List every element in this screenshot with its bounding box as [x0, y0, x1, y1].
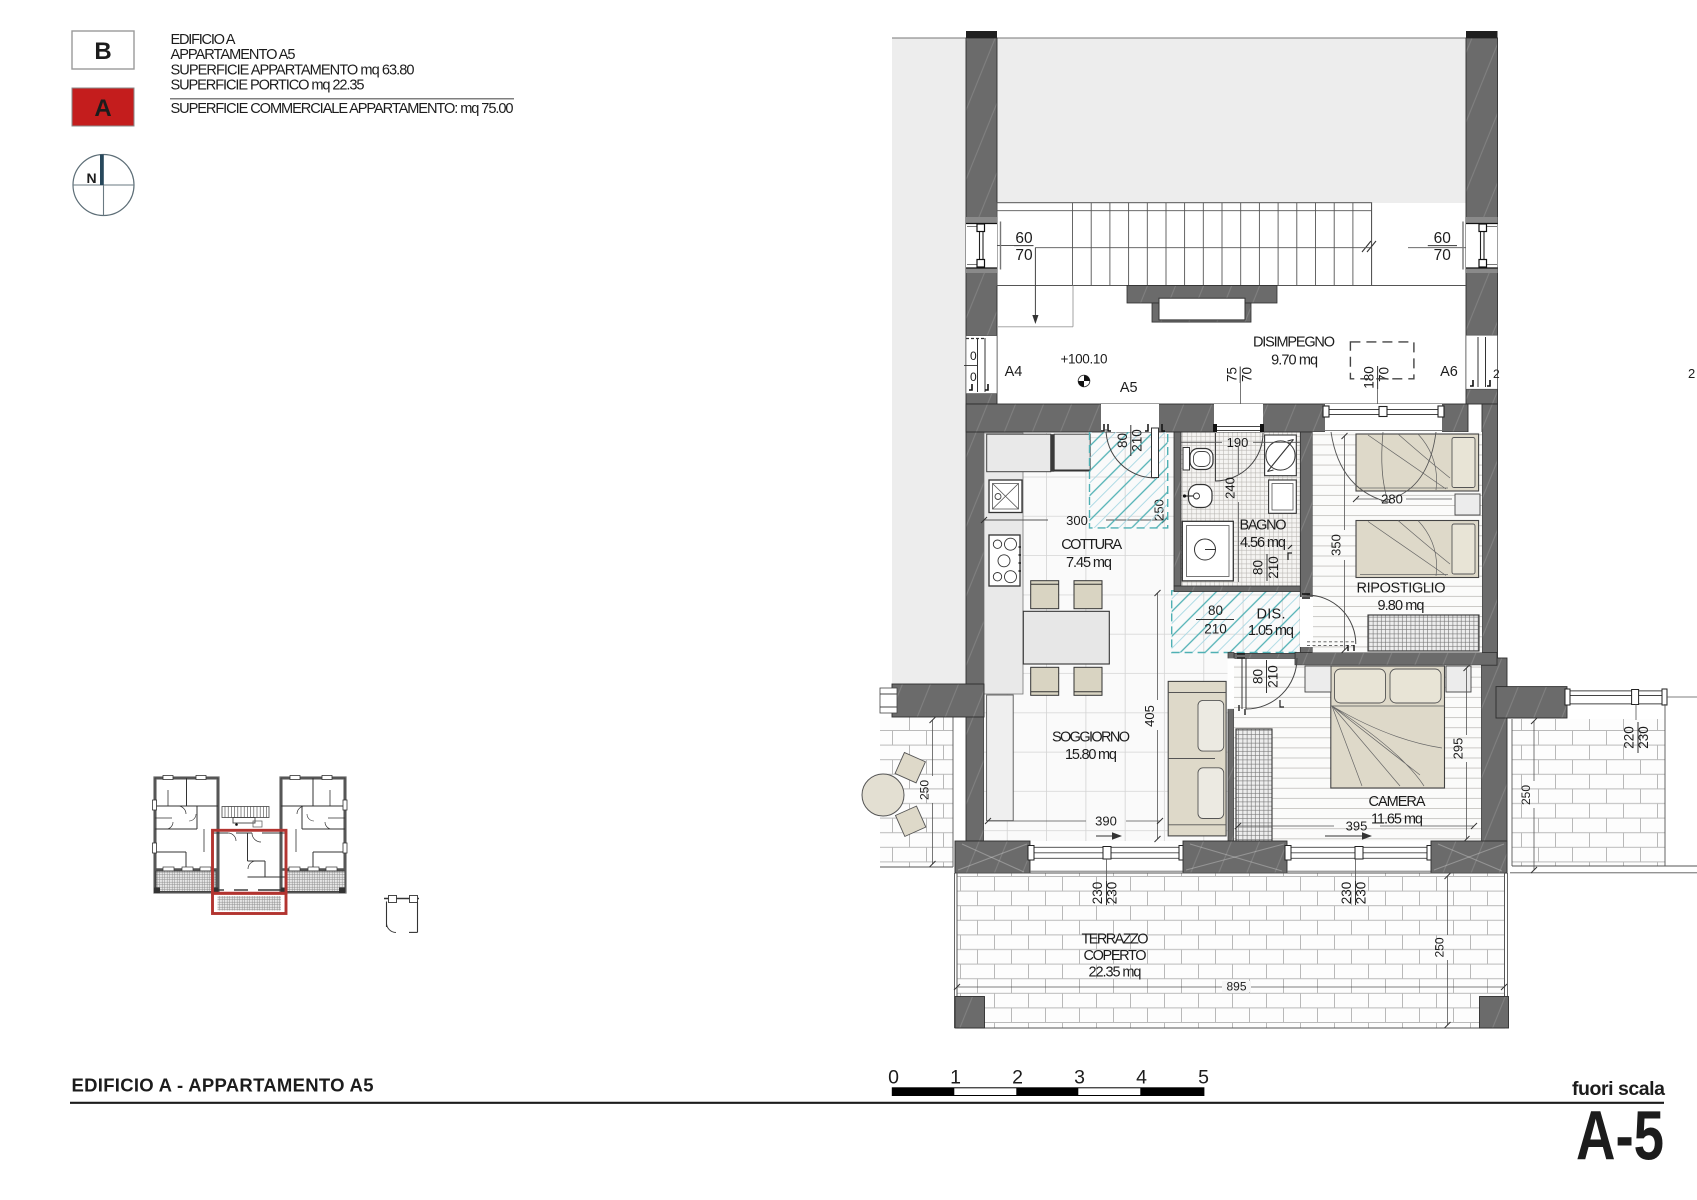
svg-text:EDIFICIO A - APPARTAMENTO A5: EDIFICIO A - APPARTAMENTO A5	[72, 1075, 374, 1096]
svg-text:230: 230	[1105, 882, 1120, 905]
svg-text:0: 0	[970, 349, 977, 363]
svg-text:70: 70	[1015, 247, 1033, 264]
svg-text:CAMERA: CAMERA	[1369, 794, 1426, 810]
svg-text:80: 80	[1250, 669, 1265, 684]
svg-text:DISIMPEGNO: DISIMPEGNO	[1253, 334, 1335, 350]
svg-text:TERRAZZO: TERRAZZO	[1082, 932, 1149, 948]
svg-text:70: 70	[1434, 247, 1452, 264]
svg-text:SUPERFICIE COMMERCIALE APPARTA: SUPERFICIE COMMERCIALE APPARTAMENTO: mq …	[171, 101, 514, 117]
svg-text:SUPERFICIE PORTICO mq 22.35: SUPERFICIE PORTICO mq 22.35	[171, 78, 365, 94]
svg-text:15.80 mq: 15.80 mq	[1065, 747, 1117, 763]
svg-text:250: 250	[1519, 785, 1533, 805]
svg-text:N: N	[86, 170, 96, 186]
svg-text:A4: A4	[1005, 364, 1023, 380]
svg-text:11.65 mq: 11.65 mq	[1371, 812, 1423, 828]
svg-text:280: 280	[1381, 492, 1403, 507]
svg-text:2: 2	[1493, 367, 1500, 381]
svg-text:SUPERFICIE APPARTAMENTO mq 63.: SUPERFICIE APPARTAMENTO mq 63.80	[171, 62, 415, 78]
svg-text:210: 210	[1204, 622, 1227, 637]
svg-text:60: 60	[1015, 230, 1033, 247]
svg-text:350: 350	[1329, 534, 1344, 556]
svg-text:250: 250	[1433, 937, 1447, 957]
svg-text:190: 190	[1227, 435, 1249, 450]
svg-text:75: 75	[1225, 367, 1240, 382]
svg-text:210: 210	[1266, 556, 1281, 579]
svg-text:295: 295	[1451, 738, 1466, 760]
svg-text:7.45 mq: 7.45 mq	[1066, 555, 1112, 571]
svg-text:0: 0	[970, 370, 977, 384]
svg-text:210: 210	[1130, 429, 1145, 452]
svg-text:COPERTO: COPERTO	[1084, 948, 1147, 964]
svg-text:A-5: A-5	[1576, 1097, 1664, 1175]
svg-text:1: 1	[950, 1067, 961, 1089]
svg-text:250: 250	[918, 780, 932, 800]
svg-text:230: 230	[1339, 882, 1354, 905]
svg-text:405: 405	[1142, 705, 1157, 727]
svg-text:B: B	[94, 38, 111, 65]
svg-text:395: 395	[1346, 819, 1368, 834]
svg-text:60: 60	[1434, 230, 1452, 247]
svg-text:+100.10: +100.10	[1061, 352, 1108, 367]
svg-text:230: 230	[1636, 726, 1651, 749]
svg-text:220: 220	[1621, 726, 1636, 749]
svg-text:22.35 mq: 22.35 mq	[1089, 965, 1142, 981]
svg-text:A: A	[94, 95, 111, 122]
svg-text:DIS.: DIS.	[1257, 607, 1286, 623]
svg-text:390: 390	[1095, 814, 1117, 829]
svg-text:70: 70	[1376, 367, 1391, 382]
svg-text:9.80 mq: 9.80 mq	[1378, 598, 1425, 614]
svg-text:230: 230	[1354, 882, 1369, 905]
svg-text:895: 895	[1226, 980, 1246, 994]
svg-text:230: 230	[1090, 882, 1105, 905]
svg-text:70: 70	[1239, 367, 1254, 382]
svg-text:BAGNO: BAGNO	[1240, 518, 1287, 534]
svg-text:APPARTAMENTO A5: APPARTAMENTO A5	[171, 47, 296, 63]
svg-text:0: 0	[888, 1067, 899, 1089]
svg-text:3: 3	[1074, 1067, 1085, 1089]
svg-text:1.05 mq: 1.05 mq	[1248, 623, 1294, 639]
svg-text:240: 240	[1223, 477, 1238, 499]
svg-text:A5: A5	[1120, 380, 1138, 396]
svg-text:80: 80	[1251, 560, 1266, 575]
svg-text:RIPOSTIGLIO: RIPOSTIGLIO	[1357, 581, 1446, 597]
svg-text:A6: A6	[1440, 364, 1458, 380]
svg-text:2: 2	[1688, 366, 1695, 381]
svg-text:COTTURA: COTTURA	[1061, 537, 1122, 553]
svg-text:4: 4	[1136, 1067, 1147, 1089]
svg-text:300: 300	[1066, 513, 1088, 528]
svg-text:SOGGIORNO: SOGGIORNO	[1052, 730, 1130, 746]
svg-text:80: 80	[1115, 433, 1130, 448]
svg-text:EDIFICIO A: EDIFICIO A	[171, 32, 236, 48]
svg-text:210: 210	[1265, 665, 1280, 688]
svg-text:180: 180	[1362, 366, 1377, 389]
svg-text:4.56 mq: 4.56 mq	[1240, 535, 1286, 551]
svg-text:5: 5	[1198, 1067, 1209, 1089]
svg-text:2: 2	[1012, 1067, 1023, 1089]
svg-text:9.70 mq: 9.70 mq	[1271, 353, 1318, 369]
svg-text:80: 80	[1208, 603, 1223, 618]
